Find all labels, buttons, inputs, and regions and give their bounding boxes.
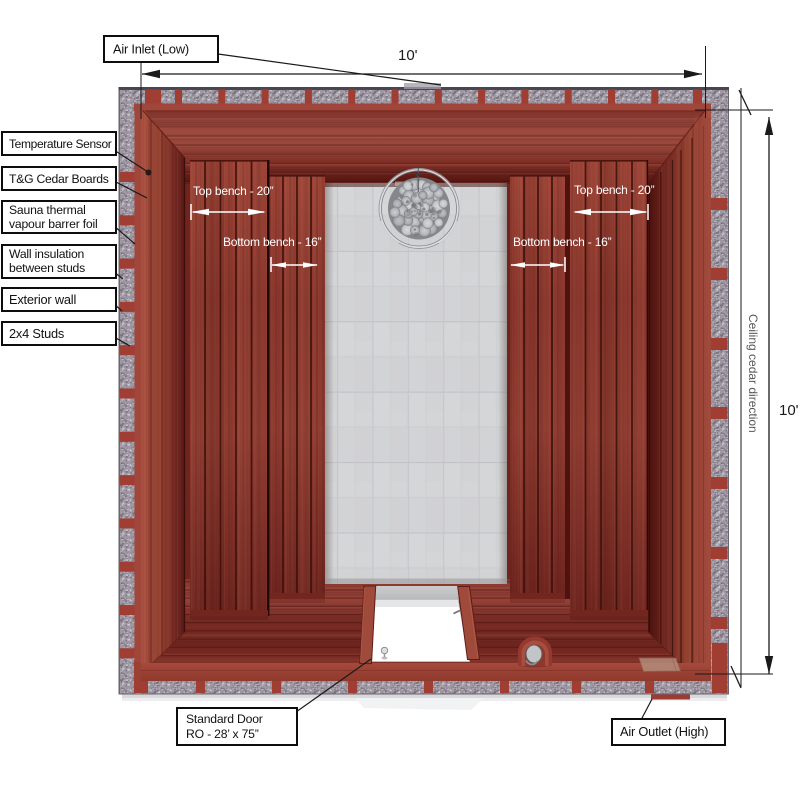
svg-text:Wall insulation: Wall insulation: [9, 247, 84, 261]
svg-text:10': 10': [398, 47, 418, 64]
svg-text:Exterior wall: Exterior wall: [9, 292, 76, 307]
svg-text:Ceiling cedar direction: Ceiling cedar direction: [746, 314, 760, 433]
svg-text:Top bench - 20”: Top bench - 20”: [574, 183, 655, 197]
svg-text:10': 10': [779, 402, 799, 419]
svg-text:RO - 28’ x 75”: RO - 28’ x 75”: [186, 727, 259, 741]
svg-text:Bottom bench - 16”: Bottom bench - 16”: [513, 235, 612, 249]
svg-text:Standard Door: Standard Door: [186, 712, 263, 726]
svg-text:between studs: between studs: [9, 261, 85, 275]
svg-text:2x4 Studs: 2x4 Studs: [9, 326, 64, 341]
svg-text:Sauna thermal: Sauna thermal: [9, 203, 86, 217]
svg-text:vapour barrer foil: vapour barrer foil: [9, 217, 98, 231]
svg-text:Top bench - 20”: Top bench - 20”: [193, 184, 274, 198]
svg-text:Air Outlet (High): Air Outlet (High): [620, 724, 708, 739]
svg-text:Air Inlet (Low): Air Inlet (Low): [113, 42, 189, 57]
svg-text:Temperature Sensor: Temperature Sensor: [9, 137, 112, 151]
svg-text:T&G Cedar Boards: T&G Cedar Boards: [9, 172, 109, 186]
svg-text:Bottom bench - 16”: Bottom bench - 16”: [223, 235, 322, 249]
